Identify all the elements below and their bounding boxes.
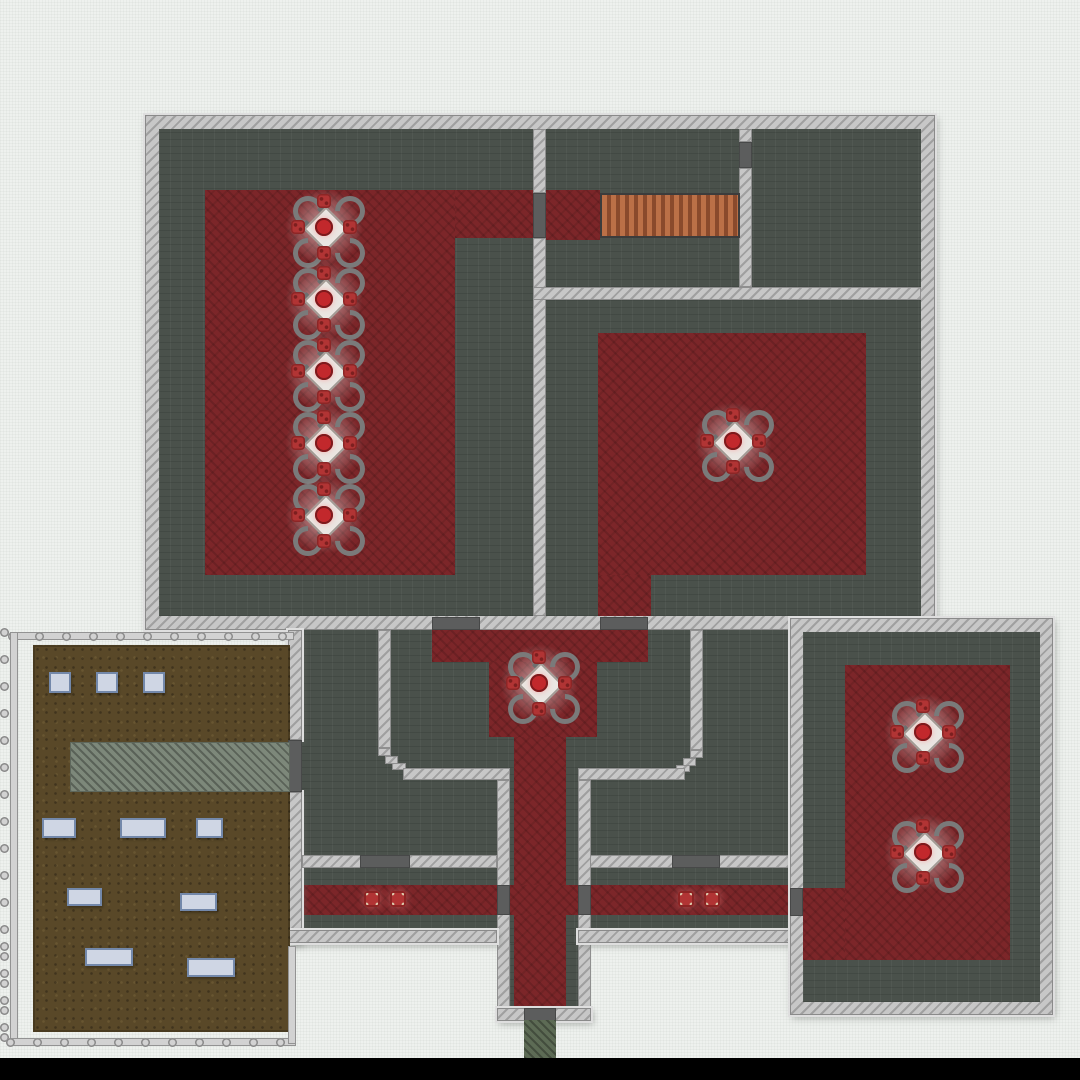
dining-table[interactable]	[289, 264, 359, 334]
food-dish-icon	[914, 723, 932, 741]
meal-plate-icon	[317, 194, 331, 208]
fence-post-icon	[33, 1038, 42, 1047]
dining-table[interactable]	[289, 336, 359, 406]
food-dish-icon	[315, 290, 333, 308]
fence-post-icon	[0, 790, 9, 799]
meal-plate-icon	[317, 482, 331, 496]
fence-post-icon	[141, 1038, 150, 1047]
meal-plate-icon	[916, 699, 930, 713]
fence-post-icon	[0, 628, 9, 637]
food-dish-icon	[315, 434, 333, 452]
game-map	[0, 0, 1080, 1080]
meal-plate-icon	[532, 702, 546, 716]
meal-plate-icon	[890, 725, 904, 739]
meal-plate-icon	[726, 408, 740, 422]
fence-post-icon	[6, 1038, 15, 1047]
meal-plate-icon	[317, 266, 331, 280]
fence-post-icon	[0, 952, 9, 961]
fence-post-icon	[170, 632, 179, 641]
fence-post-icon	[168, 1038, 177, 1047]
fence-rail	[288, 946, 296, 1044]
dining-table[interactable]	[888, 697, 958, 767]
food-dish-icon	[315, 506, 333, 524]
meal-plate-icon	[291, 436, 305, 450]
meal-plate-icon	[317, 318, 331, 332]
fence-post-icon	[114, 1038, 123, 1047]
meal-plate-icon	[343, 436, 357, 450]
yard-crate[interactable]	[196, 818, 223, 838]
fence-post-icon	[0, 898, 9, 907]
yard-crate[interactable]	[42, 818, 76, 838]
yard-crate[interactable]	[120, 818, 166, 838]
door[interactable]	[672, 855, 720, 868]
meal-plate-icon	[916, 819, 930, 833]
bottom-letterbox	[0, 1058, 1080, 1080]
meal-plate-icon	[532, 650, 546, 664]
meal-plate-icon	[916, 871, 930, 885]
meal-plate-icon	[343, 292, 357, 306]
meal-plate-icon	[558, 676, 572, 690]
dining-table[interactable]	[289, 192, 359, 262]
corridor-item-icon[interactable]	[390, 891, 406, 907]
fence-post-icon	[0, 655, 9, 664]
food-dish-icon	[315, 218, 333, 236]
corridor-item-icon[interactable]	[704, 891, 720, 907]
south-exit-path	[524, 1020, 556, 1058]
meal-plate-icon	[291, 364, 305, 378]
fence-post-icon	[222, 1038, 231, 1047]
fence-post-icon	[276, 1038, 285, 1047]
door[interactable]	[578, 885, 591, 915]
meal-plate-icon	[726, 460, 740, 474]
yard-crate[interactable]	[187, 958, 235, 977]
meal-plate-icon	[317, 338, 331, 352]
fence-post-icon	[0, 979, 9, 988]
fence-post-icon	[0, 942, 9, 951]
fence-post-icon	[197, 632, 206, 641]
meal-plate-icon	[317, 246, 331, 260]
fence-post-icon	[87, 1038, 96, 1047]
fence-post-icon	[0, 763, 9, 772]
dining-table[interactable]	[698, 406, 768, 476]
fence-post-icon	[251, 632, 260, 641]
food-dish-icon	[530, 674, 548, 692]
meal-plate-icon	[291, 292, 305, 306]
yard-path	[70, 742, 290, 792]
fence-post-icon	[0, 925, 9, 934]
door[interactable]	[533, 193, 546, 238]
fence-post-icon	[62, 632, 71, 641]
fence-post-icon	[89, 632, 98, 641]
meal-plate-icon	[942, 725, 956, 739]
door[interactable]	[288, 740, 302, 792]
door[interactable]	[600, 617, 648, 630]
fence-post-icon	[116, 632, 125, 641]
door[interactable]	[432, 617, 480, 630]
fence-post-icon	[60, 1038, 69, 1047]
meal-plate-icon	[700, 434, 714, 448]
yard-crate[interactable]	[67, 888, 102, 906]
yard-crate[interactable]	[85, 948, 133, 966]
meal-plate-icon	[343, 364, 357, 378]
staircase[interactable]	[600, 193, 740, 238]
fence-post-icon	[0, 871, 9, 880]
objects-layer	[0, 0, 1080, 1080]
door[interactable]	[790, 888, 803, 916]
dining-table[interactable]	[289, 480, 359, 550]
fence-post-icon	[0, 682, 9, 691]
dining-table[interactable]	[289, 408, 359, 478]
fence-post-icon	[0, 817, 9, 826]
fence-post-icon	[224, 632, 233, 641]
fence-post-icon	[35, 632, 44, 641]
meal-plate-icon	[317, 534, 331, 548]
fence-post-icon	[195, 1038, 204, 1047]
door[interactable]	[497, 885, 510, 915]
fence-post-icon	[278, 632, 287, 641]
fence-post-icon	[0, 844, 9, 853]
corridor-item-icon[interactable]	[678, 891, 694, 907]
meal-plate-icon	[890, 845, 904, 859]
meal-plate-icon	[916, 751, 930, 765]
meal-plate-icon	[752, 434, 766, 448]
yard-crate[interactable]	[96, 672, 118, 693]
yard-crate[interactable]	[49, 672, 71, 693]
door[interactable]	[360, 855, 410, 868]
dining-table[interactable]	[504, 648, 574, 718]
meal-plate-icon	[291, 508, 305, 522]
meal-plate-icon	[291, 220, 305, 234]
food-dish-icon	[724, 432, 742, 450]
meal-plate-icon	[317, 410, 331, 424]
dining-table[interactable]	[888, 817, 958, 887]
fence-post-icon	[0, 1006, 9, 1015]
yard-crate[interactable]	[180, 893, 217, 911]
meal-plate-icon	[343, 508, 357, 522]
fence-post-icon	[0, 969, 9, 978]
fence-post-icon	[249, 1038, 258, 1047]
fence-post-icon	[0, 1023, 9, 1032]
yard-crate[interactable]	[143, 672, 165, 693]
fence-post-icon	[0, 996, 9, 1005]
fence-post-icon	[0, 709, 9, 718]
door[interactable]	[739, 142, 752, 168]
fence-post-icon	[0, 736, 9, 745]
food-dish-icon	[914, 843, 932, 861]
meal-plate-icon	[317, 462, 331, 476]
meal-plate-icon	[506, 676, 520, 690]
meal-plate-icon	[317, 390, 331, 404]
corridor-item-icon[interactable]	[364, 891, 380, 907]
fence-post-icon	[143, 632, 152, 641]
meal-plate-icon	[343, 220, 357, 234]
fence-rail	[10, 632, 18, 1046]
food-dish-icon	[315, 362, 333, 380]
meal-plate-icon	[942, 845, 956, 859]
